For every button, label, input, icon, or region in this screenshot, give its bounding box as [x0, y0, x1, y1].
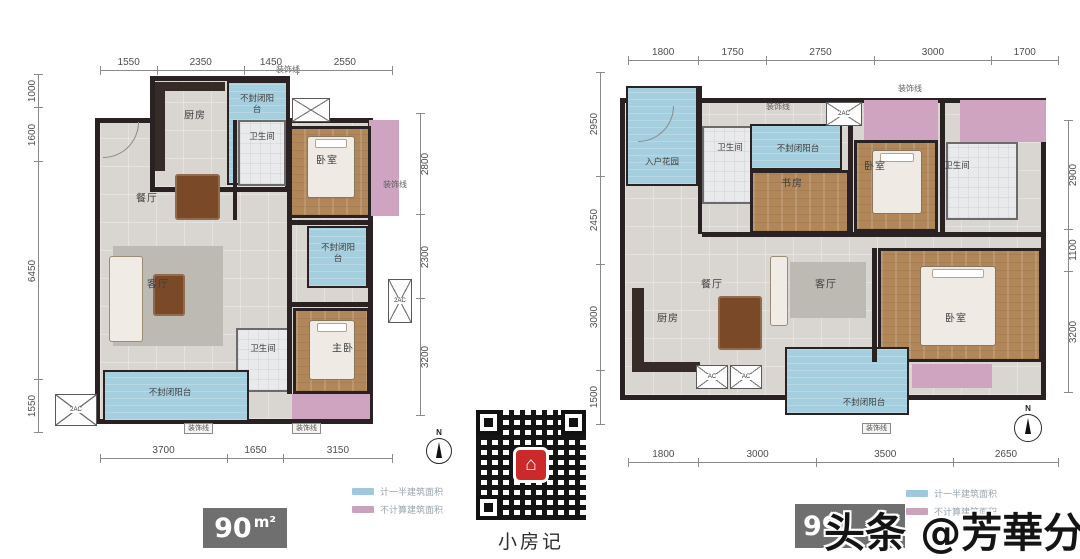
ac-platform: 2AC [826, 102, 862, 126]
qr-caption: 小房记 [470, 527, 592, 554]
dim-segment: 1650 [227, 446, 284, 462]
kitchen-counter [632, 288, 644, 372]
ac-box-label: AC [741, 374, 751, 380]
dim-segment: 2650 [954, 450, 1058, 466]
dim-value: 1550 [100, 58, 157, 68]
right-plan-top-dims: 18001750275030001700 [628, 48, 1058, 64]
dim-value: 1000 [28, 80, 38, 102]
dim-value: 3700 [100, 446, 227, 456]
room-label-balcony: 不封闭阳台 [318, 242, 358, 264]
north-compass-icon: N [1014, 414, 1042, 442]
room-label-bathroom: 卫生间 [944, 159, 970, 171]
right-plan-right-dims: 290011003200 [1060, 120, 1076, 392]
sofa [109, 256, 143, 342]
dim-segment: 3200 [412, 299, 428, 415]
dim-value: 1450 [244, 58, 298, 68]
floorplan-canvas: 1550235014502550 1000160064501550 280023… [0, 0, 1080, 559]
qr-finder-icon [476, 410, 501, 435]
ac-box-label: 2AC [393, 298, 407, 304]
dim-value: 2350 [157, 58, 244, 68]
dim-segment: 2750 [767, 48, 875, 64]
dim-segment: 1550 [100, 58, 157, 74]
dim-value: 3500 [817, 450, 954, 460]
room-label-living: 客厅 [815, 276, 837, 291]
right-plan-bathroom-2 [946, 142, 1018, 220]
kitchen-counter [644, 362, 700, 372]
qr-finder-icon [476, 495, 501, 520]
dim-value: 1500 [590, 386, 600, 408]
dim-segment: 2950 [592, 72, 608, 177]
dim-value: 3000 [874, 48, 991, 58]
room-label-bedroom: 卧室 [864, 158, 886, 173]
ac-box-label: 2AC [69, 407, 83, 413]
dim-value: 2750 [767, 48, 875, 58]
dim-segment: 3200 [1060, 271, 1076, 392]
dim-value: 3000 [590, 306, 600, 328]
dim-segment: 2350 [157, 58, 244, 74]
bed [307, 136, 355, 198]
ac-box: 2AC [388, 279, 412, 323]
dim-segment: 2300 [412, 215, 428, 299]
qr-code: ⌂ [472, 406, 590, 524]
decor-line-label: 装饰线 [383, 179, 407, 190]
dim-value: 3200 [421, 346, 431, 368]
room-label-bathroom: 卫生间 [717, 141, 743, 153]
ac-box-label: AC [707, 374, 717, 380]
right-plan-left-dims: 2950245030001500 [592, 72, 608, 424]
left-plan-left-dims: 1000160064501550 [30, 74, 46, 432]
room-label-study: 书房 [781, 175, 803, 190]
decor-line-label: 装饰线 [292, 423, 321, 434]
right-plan-bottom-dims: 1800300035002650 [628, 450, 1058, 466]
dim-segment: 1000 [30, 74, 46, 108]
wall [287, 120, 292, 394]
legend-row-half-area: 计一半建筑面积 [352, 485, 443, 498]
dim-value: 3200 [1069, 320, 1079, 342]
wall [872, 248, 877, 362]
left-plan-top-dims: 1550235014502550 [100, 58, 392, 74]
left-plan-right-pink-strip [369, 120, 399, 216]
dim-segment: 1800 [628, 450, 699, 466]
qr-finder-icon [561, 410, 586, 435]
dim-segment: 1800 [628, 48, 698, 64]
room-label-bedroom: 卧室 [945, 310, 967, 325]
dim-segment: 3000 [592, 264, 608, 371]
left-plan-legend: 计一半建筑面积 不计算建筑面积 [352, 485, 443, 521]
dim-segment: 3000 [874, 48, 991, 64]
dim-value: 2950 [590, 113, 600, 135]
dim-value: 1600 [28, 124, 38, 146]
kitchen-counter [155, 82, 225, 91]
room-label-bathroom: 卫生间 [249, 130, 275, 142]
left-plan-bottom-dims: 370016503150 [100, 446, 392, 462]
legend-blue-swatch [352, 488, 374, 495]
left-plan-right-dims: 280023003200 [412, 113, 428, 415]
dim-value: 1700 [992, 48, 1058, 58]
dim-value: 1550 [28, 395, 38, 417]
dim-value: 2800 [421, 153, 431, 175]
room-label-entry-garden: 入户花园 [642, 156, 682, 167]
dim-segment: 1450 [244, 58, 298, 74]
dim-segment: 1100 [1060, 230, 1076, 272]
bed [920, 266, 996, 346]
dim-value: 6450 [28, 260, 38, 282]
right-plan-entry-garden [626, 86, 698, 186]
left-plan-area-badge: 90 m² [203, 508, 287, 548]
wall [702, 232, 1042, 237]
right-plan-pink-strip-b [960, 100, 1046, 142]
room-label-kitchen: 厨房 [657, 310, 679, 325]
ac-platform [292, 98, 330, 122]
dim-value: 1800 [628, 450, 699, 460]
left-plan-bottom-pink-strip [292, 394, 370, 419]
north-compass-icon: N [426, 438, 452, 464]
sofa [770, 256, 788, 326]
dim-value: 2900 [1069, 164, 1079, 186]
right-plan-bottom-pink-strip [912, 364, 992, 388]
right-plan-pink-strip-a [864, 100, 938, 140]
wall [287, 302, 370, 307]
dim-segment: 3000 [699, 450, 817, 466]
legend-blue-swatch [906, 490, 928, 497]
dim-value: 2450 [590, 209, 600, 231]
dining-table [175, 174, 220, 220]
kitchen-counter [155, 91, 165, 171]
ac-box-label: 2AC [837, 111, 851, 117]
legend-pink-swatch [352, 506, 374, 513]
decor-line-label: 装饰线 [862, 423, 891, 434]
dim-segment: 2550 [298, 58, 392, 74]
room-label-dining: 餐厅 [136, 190, 158, 205]
dim-segment: 3500 [817, 450, 954, 466]
room-label-living: 客厅 [147, 276, 169, 291]
watermark-text: 头条 @芳華分析师 [824, 499, 1080, 559]
dim-value: 2550 [298, 58, 392, 68]
dim-value: 2300 [421, 246, 431, 268]
room-label-balcony: 不封闭阳台 [237, 93, 277, 115]
dim-segment: 2450 [592, 177, 608, 264]
legend-excluded-area-label: 不计算建筑面积 [380, 503, 443, 516]
wall [698, 86, 702, 234]
dim-segment: 1700 [992, 48, 1058, 64]
ac-box: AC [730, 365, 762, 389]
wall [287, 220, 370, 225]
wall [233, 120, 237, 220]
dim-segment: 2900 [1060, 120, 1076, 230]
dim-segment: 3150 [284, 446, 392, 462]
compass-n-label: N [436, 428, 442, 437]
area-unit: m² [254, 515, 276, 530]
room-label-master-bedroom: 主卧 [332, 340, 354, 355]
ac-box: AC [696, 365, 728, 389]
decor-line-label: 装饰线 [184, 423, 213, 434]
qr-house-icon: ⌂ [513, 447, 549, 483]
dim-segment: 2800 [412, 113, 428, 215]
room-label-bathroom: 卫生间 [250, 342, 276, 354]
dim-segment: 1750 [698, 48, 766, 64]
ac-box: 2AC [55, 394, 97, 426]
legend-row-excluded-area: 不计算建筑面积 [352, 503, 443, 516]
legend-half-area-label: 计一半建筑面积 [380, 485, 443, 498]
dim-value: 1650 [227, 446, 284, 456]
dim-value: 1750 [698, 48, 766, 58]
dim-segment: 3700 [100, 446, 227, 462]
dim-segment: 1550 [30, 380, 46, 432]
right-plan-body: 2AC AC AC 入户花园 卫生间 不封闭阳台 书房 卧室 卫生间 餐厅 客厅 [620, 70, 1065, 430]
decor-line-label: 装饰线 [766, 101, 790, 112]
dim-value: 3150 [284, 446, 392, 456]
dim-value: 3000 [699, 450, 817, 460]
dim-value: 1800 [628, 48, 698, 58]
room-label-bedroom: 卧室 [316, 152, 338, 167]
dim-value: 1100 [1069, 240, 1079, 262]
dining-table [718, 296, 762, 350]
dim-value: 2650 [954, 450, 1058, 460]
room-label-dining: 餐厅 [701, 276, 723, 291]
left-plan-body: 2AC 2AC 厨房 不封闭阳台 卫生间 卧室 餐厅 客厅 不封闭阳台 卫生间 … [95, 76, 403, 432]
compass-n-label: N [1025, 404, 1031, 413]
room-label-balcony: 不封闭阳台 [777, 142, 820, 154]
dim-segment: 1600 [30, 108, 46, 162]
room-label-balcony: 不封闭阳台 [843, 396, 886, 408]
room-label-kitchen: 厨房 [184, 107, 206, 122]
area-value: 90 [214, 515, 252, 542]
decor-line-label: 装饰线 [898, 83, 922, 94]
dim-segment: 1500 [592, 371, 608, 424]
room-label-balcony: 不封闭阳台 [149, 386, 192, 398]
dim-segment: 6450 [30, 162, 46, 380]
